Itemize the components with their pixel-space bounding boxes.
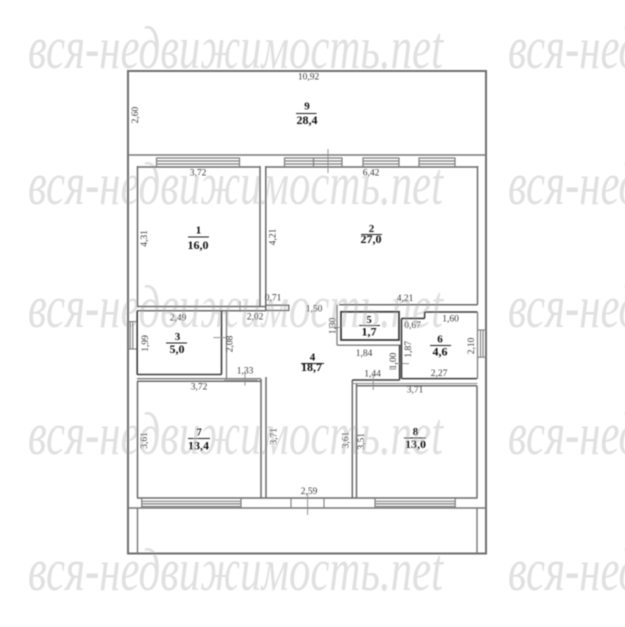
svg-text:вся-недвижимость.net: вся-недвижимость.net	[28, 401, 444, 467]
svg-text:1,33: 1,33	[237, 367, 254, 377]
svg-text:9: 9	[304, 101, 310, 113]
svg-text:1,7: 1,7	[362, 325, 377, 339]
svg-text:3,61: 3,61	[140, 432, 150, 449]
svg-text:10,92: 10,92	[298, 73, 320, 83]
svg-text:3,72: 3,72	[191, 383, 208, 393]
svg-text:3,71: 3,71	[407, 386, 424, 396]
svg-text:1,99: 1,99	[141, 335, 151, 352]
svg-text:1,50: 1,50	[306, 305, 323, 315]
svg-text:1,44: 1,44	[364, 370, 381, 380]
svg-text:1,30: 1,30	[328, 317, 338, 334]
svg-text:18,7: 18,7	[301, 360, 322, 374]
svg-text:0,67: 0,67	[404, 321, 421, 331]
svg-text:1,60: 1,60	[442, 314, 459, 324]
svg-text:вся-недвижимость.net: вся-недвижимость.net	[508, 274, 625, 340]
svg-text:1,84: 1,84	[356, 349, 373, 359]
svg-text:вся-недвижимость.net: вся-недвижимость.net	[508, 537, 625, 603]
svg-text:5,0: 5,0	[170, 342, 185, 356]
svg-text:28,4: 28,4	[297, 113, 318, 127]
svg-text:3,72: 3,72	[190, 169, 207, 179]
svg-text:2,60: 2,60	[131, 106, 141, 123]
svg-text:4,21: 4,21	[268, 228, 278, 245]
svg-text:27,0: 27,0	[361, 232, 382, 246]
svg-text:вся-недвижимость.net: вся-недвижимость.net	[508, 15, 625, 81]
svg-text:2,27: 2,27	[431, 369, 448, 379]
svg-text:3,71: 3,71	[269, 428, 279, 445]
svg-text:13,4: 13,4	[188, 439, 209, 453]
svg-text:7: 7	[196, 427, 202, 439]
svg-text:4,6: 4,6	[433, 345, 448, 359]
svg-text:1,87: 1,87	[404, 341, 414, 358]
svg-text:13,0: 13,0	[405, 437, 426, 451]
svg-text:3,61: 3,61	[342, 432, 352, 449]
svg-text:2,59: 2,59	[301, 487, 318, 497]
svg-text:1,00: 1,00	[389, 352, 399, 369]
svg-text:2,10: 2,10	[467, 337, 477, 354]
svg-text:3,51: 3,51	[357, 433, 367, 450]
svg-text:0,71: 0,71	[265, 294, 282, 304]
svg-text:4,31: 4,31	[140, 230, 150, 247]
svg-text:6,42: 6,42	[363, 169, 380, 179]
svg-text:1: 1	[196, 225, 202, 237]
svg-text:2,08: 2,08	[226, 335, 236, 352]
svg-text:4,21: 4,21	[397, 294, 414, 304]
svg-text:вся-недвижимость.net: вся-недвижимость.net	[508, 151, 625, 217]
svg-text:2,02: 2,02	[247, 313, 264, 323]
svg-text:16,0: 16,0	[188, 238, 209, 252]
svg-text:2,49: 2,49	[170, 314, 187, 324]
svg-text:вся-недвижимость.net: вся-недвижимость.net	[28, 537, 444, 603]
svg-text:вся-недвижимость.net: вся-недвижимость.net	[508, 401, 625, 467]
